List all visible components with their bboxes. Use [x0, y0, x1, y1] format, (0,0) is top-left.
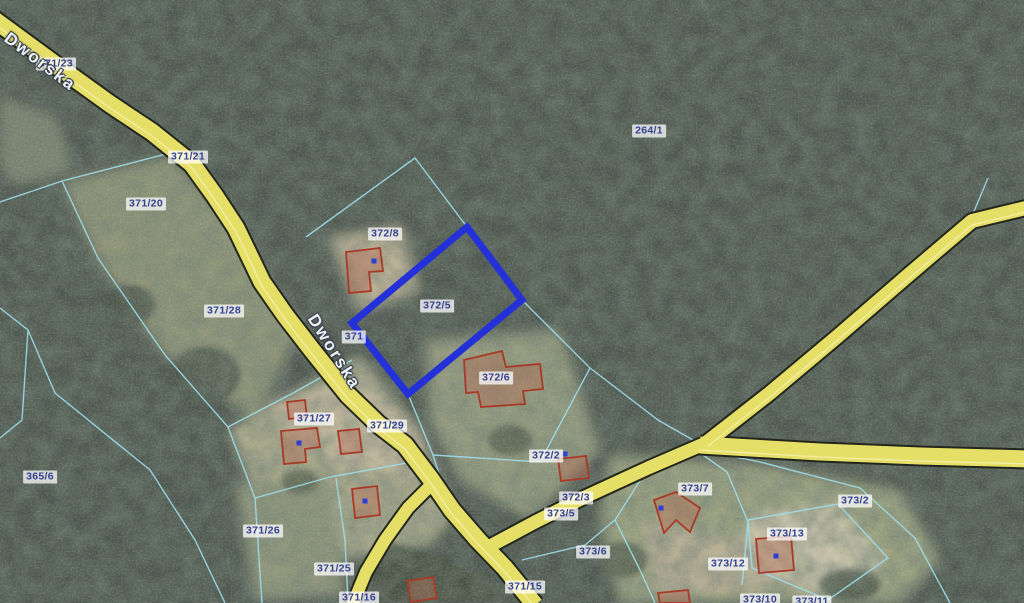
- satellite-map-canvas: [0, 0, 1024, 603]
- building: [287, 400, 307, 419]
- map-viewport[interactable]: 371/23371/21371/20264/1372/8372/5371/283…: [0, 0, 1024, 603]
- building: [658, 590, 690, 603]
- building: [558, 456, 589, 481]
- building: [407, 577, 437, 602]
- building: [338, 429, 362, 454]
